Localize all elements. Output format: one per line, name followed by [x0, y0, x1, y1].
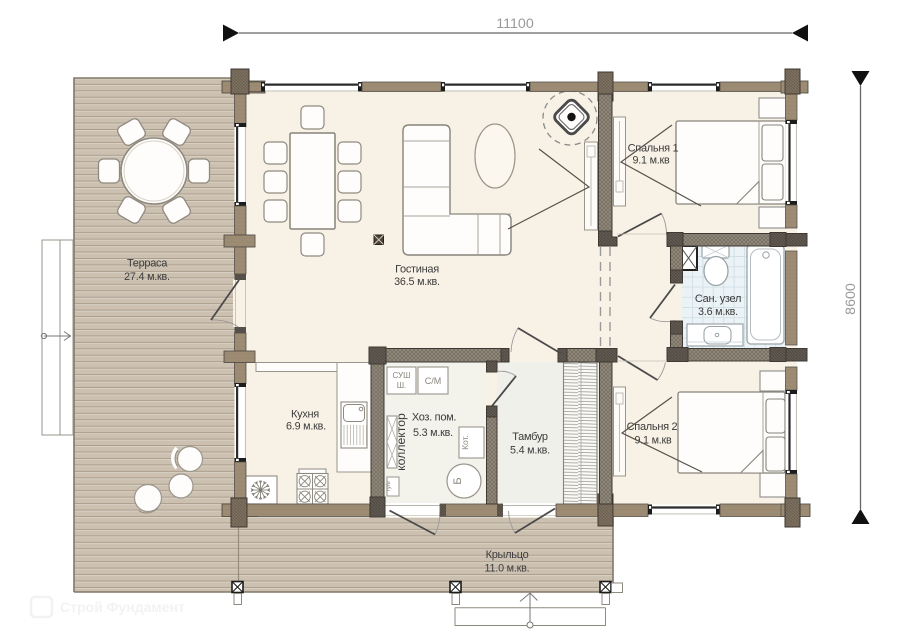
- svg-text:Ш.: Ш.: [397, 381, 407, 390]
- svg-text:Тамбур: Тамбур: [512, 431, 548, 443]
- svg-text:Кухня: Кухня: [291, 409, 319, 421]
- svg-text:11100: 11100: [496, 16, 534, 32]
- svg-text:Кот.: Кот.: [460, 435, 470, 450]
- svg-text:Строй Фундамент: Строй Фундамент: [60, 599, 185, 615]
- svg-text:Спальня 2: Спальня 2: [627, 421, 678, 433]
- svg-text:9.1 м.кв: 9.1 м.кв: [632, 155, 670, 167]
- svg-text:СУШ: СУШ: [393, 371, 411, 380]
- svg-text:Хоз. пом.: Хоз. пом.: [412, 412, 457, 424]
- svg-text:Б: Б: [452, 477, 464, 484]
- svg-text:5.3 м.кв.: 5.3 м.кв.: [413, 427, 453, 439]
- svg-text:6.9 м.кв.: 6.9 м.кв.: [286, 421, 326, 433]
- svg-text:коллектор: коллектор: [394, 413, 408, 471]
- svg-text:Сан. узел: Сан. узел: [695, 293, 741, 305]
- svg-text:Спальня 1: Спальня 1: [628, 143, 679, 155]
- svg-text:8600: 8600: [843, 283, 859, 315]
- svg-text:9.1 м.кв: 9.1 м.кв: [634, 435, 672, 447]
- svg-text:С/М: С/М: [425, 376, 442, 386]
- svg-text:ту/е: ту/е: [386, 480, 392, 491]
- svg-text:36.5 м.кв.: 36.5 м.кв.: [394, 276, 440, 288]
- svg-text:Крыльцо: Крыльцо: [486, 549, 529, 561]
- svg-text:Гостиная: Гостиная: [395, 264, 439, 276]
- svg-text:Терраса: Терраса: [127, 258, 168, 270]
- svg-text:5.4 м.кв.: 5.4 м.кв.: [510, 445, 550, 457]
- svg-text:3.6 м.кв.: 3.6 м.кв.: [698, 306, 738, 318]
- svg-text:27.4 м.кв.: 27.4 м.кв.: [124, 271, 170, 283]
- svg-text:11.0 м.кв.: 11.0 м.кв.: [485, 563, 530, 575]
